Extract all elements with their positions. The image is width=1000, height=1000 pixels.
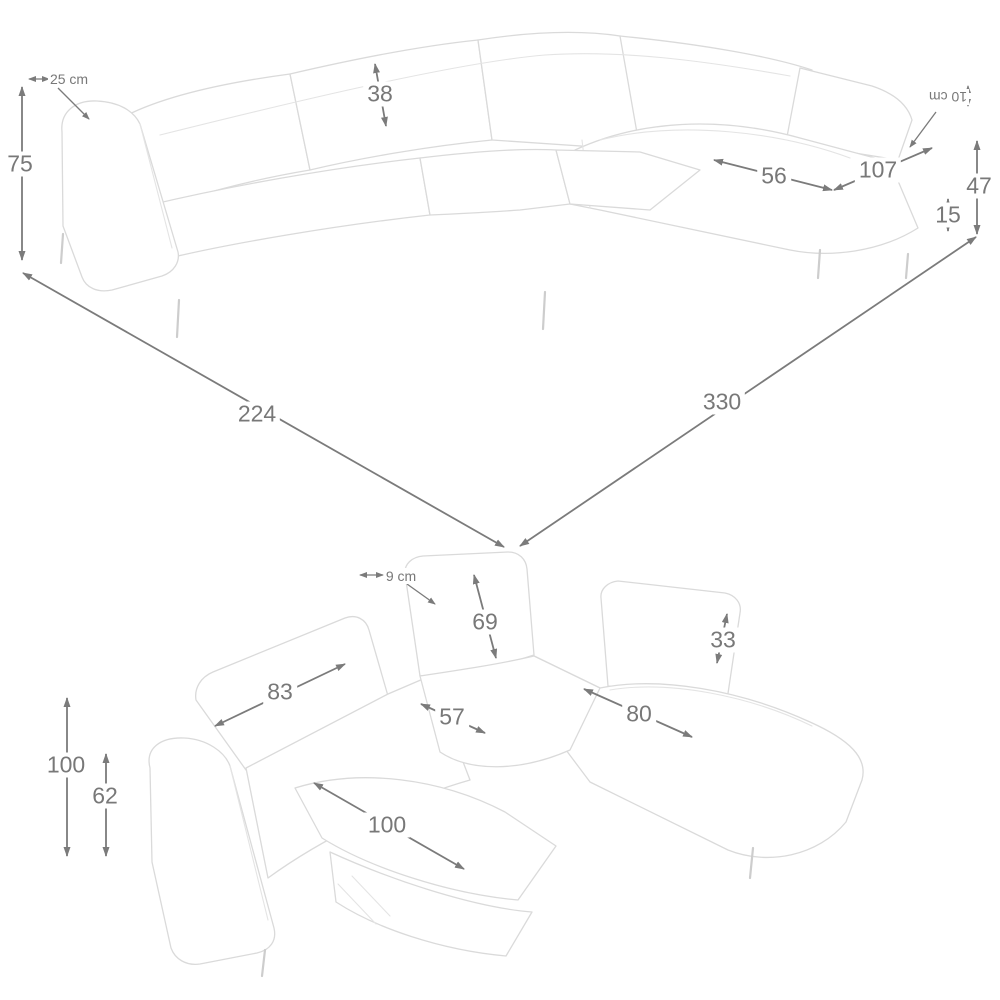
sofa-leg <box>177 300 179 337</box>
dim-label-width-left: 224 <box>234 402 280 427</box>
dim-label-corner-seat-width: 57 <box>435 705 469 730</box>
leader-headrest-depth <box>910 112 936 147</box>
dim-label-headrest-height: 33 <box>706 628 740 653</box>
dim-label-seat-width: 80 <box>622 702 656 727</box>
dim-label-overall-height-2: 100 <box>43 753 89 778</box>
dim-label-recliner-length: 100 <box>364 813 410 838</box>
dim-label-backrest-top-height: 62 <box>88 784 122 809</box>
sofa-leg <box>262 950 265 976</box>
dim-label-backrest-height: 38 <box>363 82 397 107</box>
dim-arrow-width-right <box>520 237 976 546</box>
dim-label-headrest-depth: 10 cm <box>927 89 969 105</box>
diagram-canvas <box>0 0 1000 1000</box>
sofa-leg <box>906 254 908 278</box>
dim-label-width-right: 330 <box>699 390 745 415</box>
sofa-dimension-diagram: 25 cm 75 38 56 107 10 cm 47 15 224 330 9… <box>0 0 1000 1000</box>
sofa-leg <box>543 292 545 329</box>
dim-label-ground-clearance: 15 <box>931 203 965 228</box>
dim-label-overall-height: 75 <box>3 152 37 177</box>
dim-label-chaise-seat-width: 56 <box>757 164 791 189</box>
bottom-sofa-sketch <box>149 552 863 976</box>
dim-label-headrest-depth-2: 9 cm <box>384 568 418 584</box>
dim-label-backrest-width: 83 <box>263 680 297 705</box>
sofa-leg <box>818 250 820 278</box>
sofa-leg <box>61 234 63 263</box>
dim-label-side-height: 47 <box>962 174 996 199</box>
dim-label-chaise-length: 107 <box>855 158 901 183</box>
dim-label-armrest-width: 25 cm <box>48 71 90 87</box>
dim-label-backrest-height-2: 69 <box>468 610 502 635</box>
